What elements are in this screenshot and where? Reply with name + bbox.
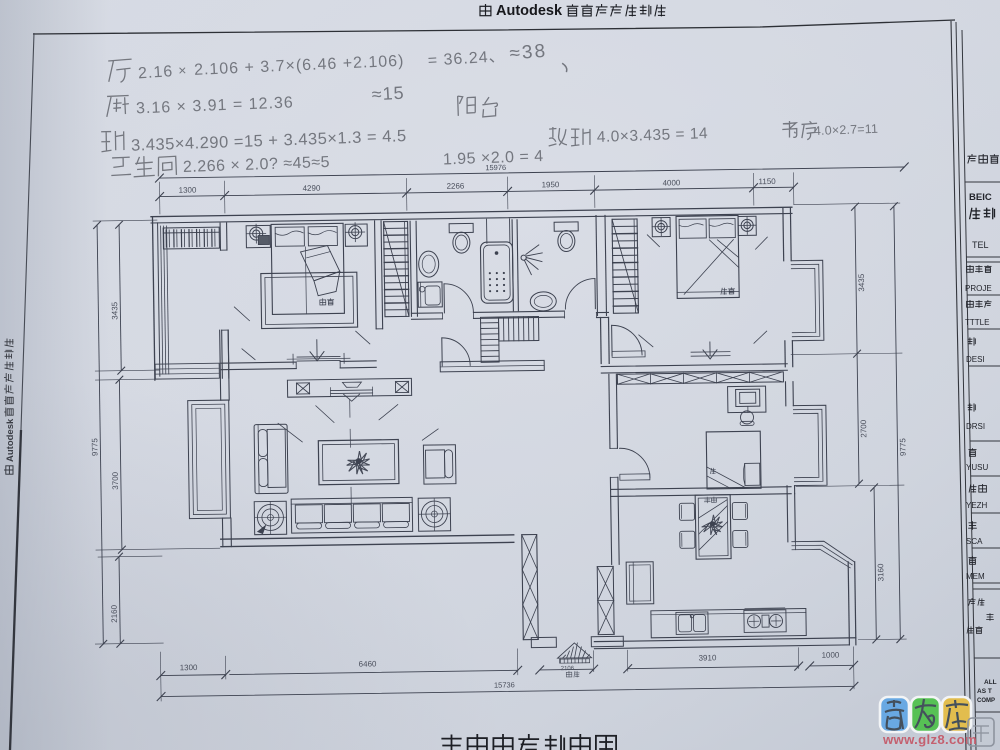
svg-text:4290: 4290 xyxy=(302,184,320,193)
svg-text:1300: 1300 xyxy=(179,186,197,195)
svg-text:9775: 9775 xyxy=(90,438,99,456)
svg-text:3910: 3910 xyxy=(699,653,717,662)
svg-text:3435: 3435 xyxy=(110,301,119,319)
svg-text:2106: 2106 xyxy=(561,666,575,672)
svg-text:9775: 9775 xyxy=(898,438,907,456)
svg-text:YEZH: YEZH xyxy=(966,501,988,510)
svg-text:1950: 1950 xyxy=(541,180,559,189)
svg-text:DESI: DESI xyxy=(966,355,985,364)
svg-text:SCA: SCA xyxy=(966,537,983,546)
svg-text:15976: 15976 xyxy=(485,163,506,172)
svg-text:AS T: AS T xyxy=(977,688,992,695)
svg-text:1150: 1150 xyxy=(758,177,776,186)
svg-text:2266: 2266 xyxy=(446,182,464,191)
svg-text:4.0×2.7=11: 4.0×2.7=11 xyxy=(814,122,879,138)
svg-text:2.16: 2.16 xyxy=(138,63,174,82)
svg-text:2700: 2700 xyxy=(859,419,868,437)
svg-text:6460: 6460 xyxy=(359,659,377,668)
svg-text:2160: 2160 xyxy=(110,604,119,622)
svg-text:1300: 1300 xyxy=(180,663,198,672)
svg-text:≈15: ≈15 xyxy=(371,83,405,105)
svg-text:BEIC: BEIC xyxy=(969,192,992,203)
svg-text:3435: 3435 xyxy=(857,273,866,291)
svg-text:Autodesk: Autodesk xyxy=(5,418,16,462)
svg-text:15736: 15736 xyxy=(494,680,515,689)
svg-text:4000: 4000 xyxy=(662,178,680,187)
svg-text:ALL: ALL xyxy=(984,679,997,686)
svg-text:Autodesk: Autodesk xyxy=(496,3,563,19)
svg-text:TEL: TEL xyxy=(972,240,989,250)
svg-text:×: × xyxy=(178,62,187,78)
svg-text:DRSI: DRSI xyxy=(966,422,985,431)
svg-text:≈38: ≈38 xyxy=(509,41,548,65)
svg-text:PROJE: PROJE xyxy=(965,284,992,293)
svg-text:www.glz8.com: www.glz8.com xyxy=(882,732,977,747)
svg-text:MEM: MEM xyxy=(966,572,985,581)
svg-text:1000: 1000 xyxy=(821,651,839,660)
svg-text:YUSU: YUSU xyxy=(966,463,988,472)
svg-text:TTTLE: TTTLE xyxy=(965,318,989,327)
svg-text:3700: 3700 xyxy=(111,471,120,489)
svg-text:COMP: COMP xyxy=(977,698,995,704)
svg-text:3160: 3160 xyxy=(876,563,885,581)
